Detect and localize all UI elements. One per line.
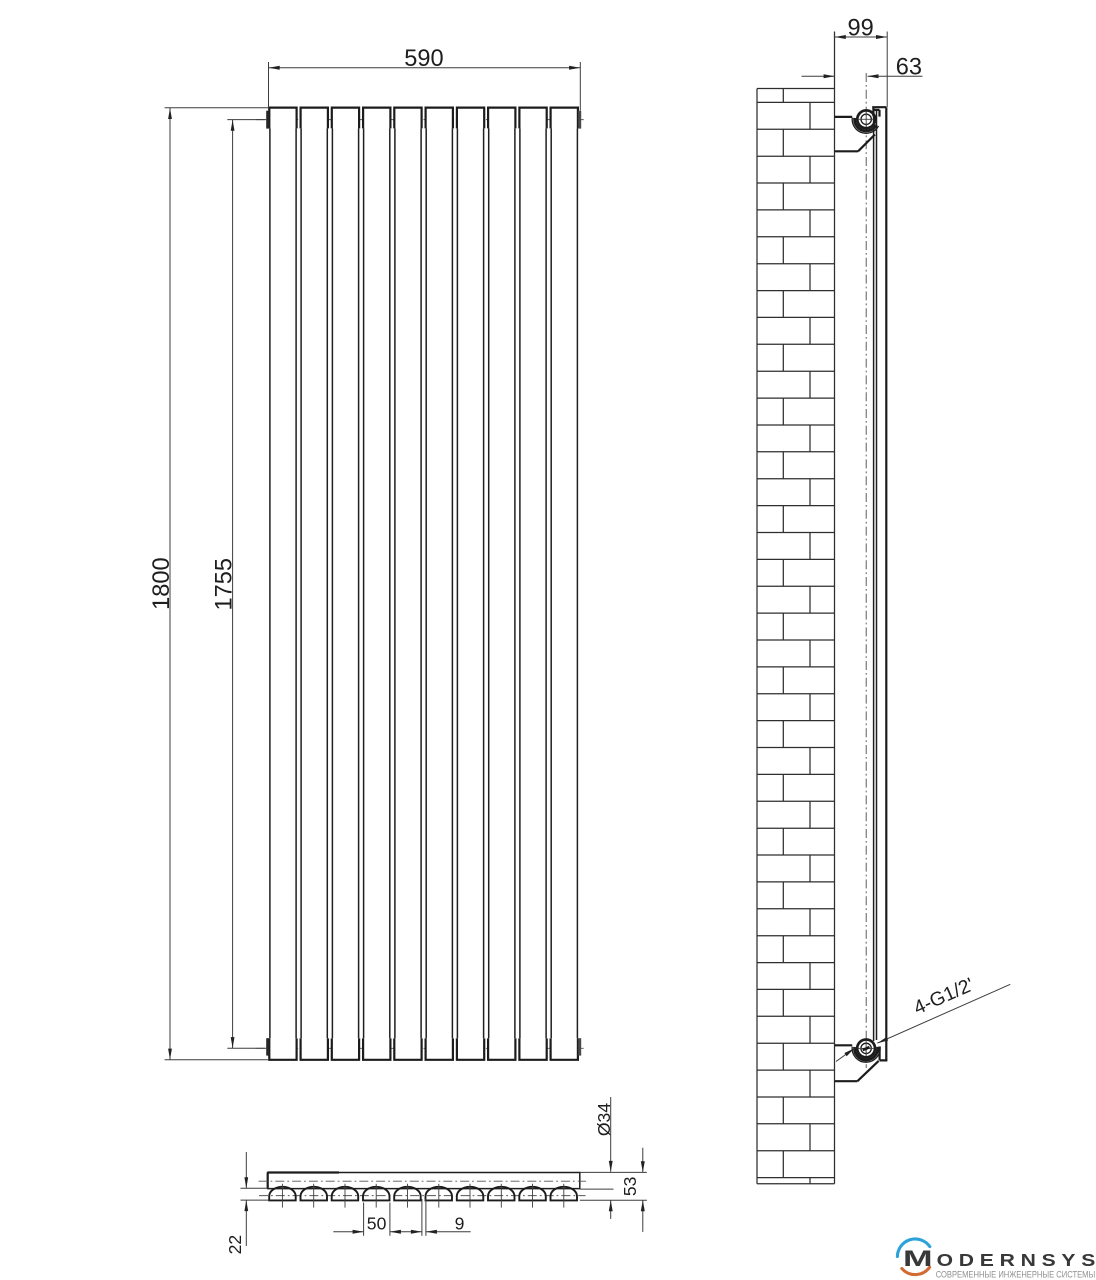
svg-text:99: 99 <box>847 15 873 41</box>
svg-text:22: 22 <box>225 1235 245 1255</box>
svg-text:ODERNSYS: ODERNSYS <box>937 1250 1096 1270</box>
svg-text:Ø34: Ø34 <box>594 1103 614 1136</box>
svg-text:53: 53 <box>620 1176 640 1196</box>
svg-text:63: 63 <box>896 55 922 81</box>
svg-text:590: 590 <box>404 46 443 72</box>
svg-text:M: M <box>903 1246 933 1271</box>
svg-text:1800: 1800 <box>149 557 175 610</box>
svg-text:9: 9 <box>455 1214 465 1234</box>
svg-text:СОВРЕМЕННЫЕ ИНЖЕНЕРНЫЕ СИСТЕ: СОВРЕМЕННЫЕ ИНЖЕНЕРНЫЕ СИСТЕМЫ <box>936 1270 1095 1280</box>
svg-text:1755: 1755 <box>211 558 237 611</box>
svg-text:50: 50 <box>367 1214 387 1234</box>
